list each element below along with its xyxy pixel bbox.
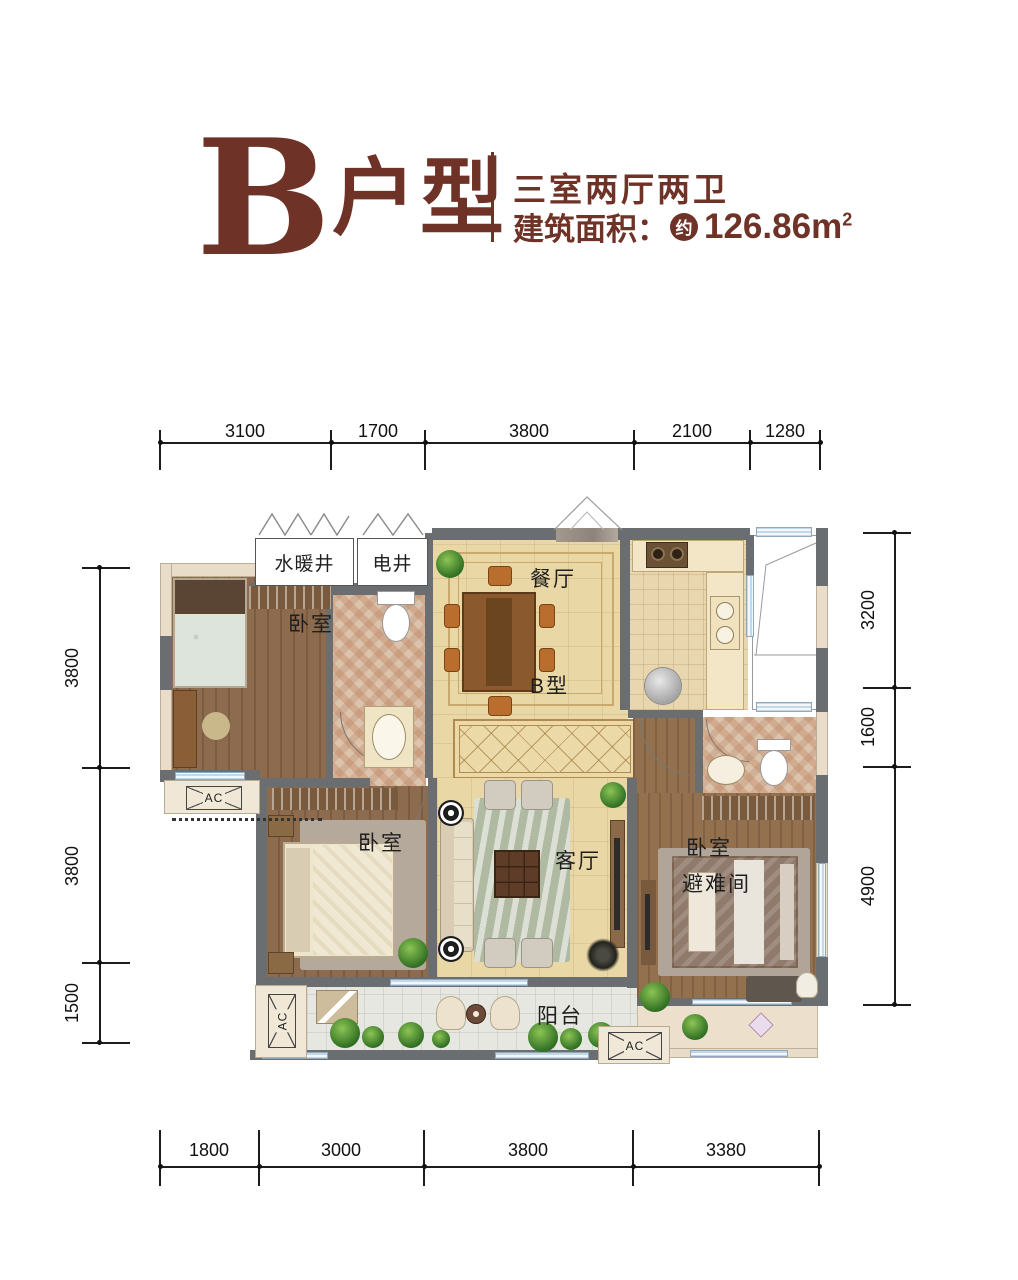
window xyxy=(690,1050,788,1057)
wall xyxy=(627,778,637,988)
table-runner xyxy=(486,598,512,686)
bed-duvet xyxy=(175,616,245,686)
dim-top-3: 3800 xyxy=(489,421,569,442)
dining-chair xyxy=(539,648,555,672)
stove xyxy=(646,542,688,568)
dim-bottom-1: 1800 xyxy=(169,1140,249,1161)
wall xyxy=(695,712,703,793)
coffee-table xyxy=(494,850,540,898)
armchair xyxy=(484,780,516,810)
balcony-chair xyxy=(490,996,520,1030)
shaft-hatch-icon xyxy=(362,510,424,542)
dining-chair xyxy=(444,648,460,672)
dim-right-2: 1600 xyxy=(858,687,878,767)
chair-right xyxy=(796,972,818,998)
label-bedroom-top: 卧室 xyxy=(288,608,334,638)
dim-tick xyxy=(632,1130,634,1186)
corridor-runner xyxy=(453,719,637,779)
label-living: 客厅 xyxy=(555,845,601,875)
header-divider xyxy=(491,152,494,242)
bench xyxy=(173,690,197,768)
dining-chair xyxy=(488,566,512,586)
plant xyxy=(398,938,428,968)
wall xyxy=(618,528,750,540)
wall xyxy=(816,775,828,863)
label-balcony: 阳台 xyxy=(537,1000,583,1030)
wall xyxy=(620,540,630,710)
wall xyxy=(432,528,558,540)
armchair xyxy=(484,938,516,968)
dim-line-right xyxy=(894,533,896,1006)
unit-type-suffix: 户型 xyxy=(332,156,508,240)
shaft-electric-box: 电井 xyxy=(357,538,428,586)
dim-left-1: 3800 xyxy=(62,628,82,708)
bed-pillows xyxy=(286,848,310,952)
dim-bottom-2: 3000 xyxy=(301,1140,381,1161)
approx-badge: 约 xyxy=(670,213,698,241)
plant xyxy=(330,1018,360,1048)
sink-2 xyxy=(708,756,744,784)
dining-table xyxy=(462,592,536,692)
window xyxy=(818,863,826,957)
tv-console-bedroom xyxy=(641,880,656,965)
burner xyxy=(670,547,684,561)
wall xyxy=(267,778,370,787)
window xyxy=(495,1052,589,1059)
plant xyxy=(560,1028,582,1050)
shaft-hatch-icon xyxy=(258,510,350,542)
balcony-table xyxy=(466,1004,486,1024)
wall xyxy=(428,778,437,978)
sink-basin xyxy=(716,602,734,620)
bed-top xyxy=(173,578,247,688)
window xyxy=(390,979,528,986)
ac-dotted-line xyxy=(172,814,322,821)
dim-left-3: 1500 xyxy=(62,963,82,1043)
plant xyxy=(600,782,626,808)
wall xyxy=(160,636,172,690)
bench-right xyxy=(746,976,802,1002)
ac-label: AC xyxy=(275,1010,289,1033)
balcony-chair xyxy=(436,996,466,1030)
dim-tick xyxy=(633,430,635,470)
ac-unit-left: AC xyxy=(186,786,242,810)
window xyxy=(756,702,812,712)
sofa xyxy=(440,818,474,952)
plant xyxy=(398,1022,424,1048)
dim-right-3: 4900 xyxy=(858,846,878,926)
plant xyxy=(682,1014,708,1040)
unit-letter: B xyxy=(196,118,331,278)
kitchen-sink xyxy=(710,596,740,650)
bed-pillows xyxy=(780,864,794,960)
dining-chair xyxy=(444,604,460,628)
equipment-platform xyxy=(752,535,820,710)
area-unit: m2 xyxy=(811,207,852,247)
dim-line-left xyxy=(99,568,101,1044)
shaft-electric-label: 电井 xyxy=(372,549,412,576)
armchair xyxy=(521,938,553,968)
shaft-water-box: 水暖井 xyxy=(255,538,354,586)
wardrobe-right xyxy=(702,796,814,820)
label-bedroom-mid: 卧室 xyxy=(358,827,404,857)
area-value: 126.86 xyxy=(704,207,811,247)
plant xyxy=(640,982,670,1012)
dim-tick xyxy=(159,1130,161,1186)
nightstand xyxy=(268,952,294,974)
window xyxy=(756,527,812,537)
armchair xyxy=(521,780,553,810)
plant xyxy=(362,1026,384,1048)
toilet-bowl-2 xyxy=(761,751,787,785)
pouf xyxy=(202,712,230,740)
sink-basin xyxy=(716,626,734,644)
dim-top-4: 2100 xyxy=(652,421,732,442)
dim-top-5: 1280 xyxy=(745,421,825,442)
wall xyxy=(160,563,256,577)
vanity-1 xyxy=(364,706,414,768)
dim-tick xyxy=(424,430,426,470)
tv xyxy=(614,838,620,930)
area-label: 建筑面积： xyxy=(513,204,668,249)
dining-chair xyxy=(488,696,512,716)
floor-lamp xyxy=(438,800,464,826)
dim-tick xyxy=(330,430,332,470)
table-dot xyxy=(473,1011,479,1017)
dining-chair xyxy=(539,604,555,628)
label-refuge: 避难间 xyxy=(682,868,751,898)
dim-tick xyxy=(82,567,130,569)
ac-label: AC xyxy=(203,791,226,805)
toilet-bowl-1 xyxy=(383,605,409,641)
area-line: 建筑面积： 约 126.86 m2 xyxy=(513,204,852,249)
sofa-cushions xyxy=(454,822,472,948)
dim-left-2: 3800 xyxy=(62,826,82,906)
decor-plant-dark xyxy=(586,938,620,972)
dim-tick xyxy=(159,430,161,470)
window xyxy=(746,575,754,637)
label-unit-mark: B型 xyxy=(530,670,569,700)
platform-door-lines xyxy=(752,535,820,710)
wall xyxy=(746,535,754,575)
dim-tick xyxy=(82,962,130,964)
bed-pillows xyxy=(175,580,245,614)
shaft-water-label: 水暖井 xyxy=(274,549,334,576)
wall xyxy=(816,648,828,712)
water-heater xyxy=(645,668,681,704)
dim-tick xyxy=(82,767,130,769)
dim-right-1: 3200 xyxy=(858,570,878,650)
dim-tick xyxy=(258,1130,260,1186)
floorplan-page: B 户型 三室两厅两卫 建筑面积： 约 126.86 m2 3100 1700 … xyxy=(0,0,1018,1280)
ac-label: AC xyxy=(624,1039,647,1053)
dim-bottom-3: 3800 xyxy=(488,1140,568,1161)
wardrobe-top xyxy=(249,586,331,609)
sink-1 xyxy=(372,714,406,760)
dim-tick xyxy=(423,1130,425,1186)
label-dining: 餐厅 xyxy=(530,563,576,593)
dim-tick xyxy=(863,1004,911,1006)
floor-lamp xyxy=(438,936,464,962)
ac-unit-bottom-center: AC xyxy=(608,1032,662,1060)
dim-top-1: 3100 xyxy=(205,421,285,442)
tv xyxy=(645,894,650,950)
wall xyxy=(816,528,828,586)
wardrobe-mid xyxy=(272,788,398,810)
entry-door-icon xyxy=(552,494,624,537)
dim-tick xyxy=(818,1130,820,1186)
bed-mid xyxy=(283,842,395,958)
window xyxy=(175,772,245,780)
ac-unit-bottom-left: AC xyxy=(268,994,296,1048)
dim-tick xyxy=(82,1042,130,1044)
toilet-tank-2 xyxy=(758,740,790,750)
toilet-tank-1 xyxy=(378,592,414,604)
burner xyxy=(651,547,665,561)
dim-tick xyxy=(863,532,911,534)
bed-duvet xyxy=(313,845,392,955)
dim-top-2: 1700 xyxy=(338,421,418,442)
plant xyxy=(436,550,464,578)
tv-console-living xyxy=(610,820,625,948)
label-bedroom-right: 卧室 xyxy=(686,832,732,862)
dim-line-top xyxy=(160,442,821,444)
wall xyxy=(628,710,703,718)
plant xyxy=(432,1030,450,1048)
dim-bottom-4: 3380 xyxy=(686,1140,766,1161)
